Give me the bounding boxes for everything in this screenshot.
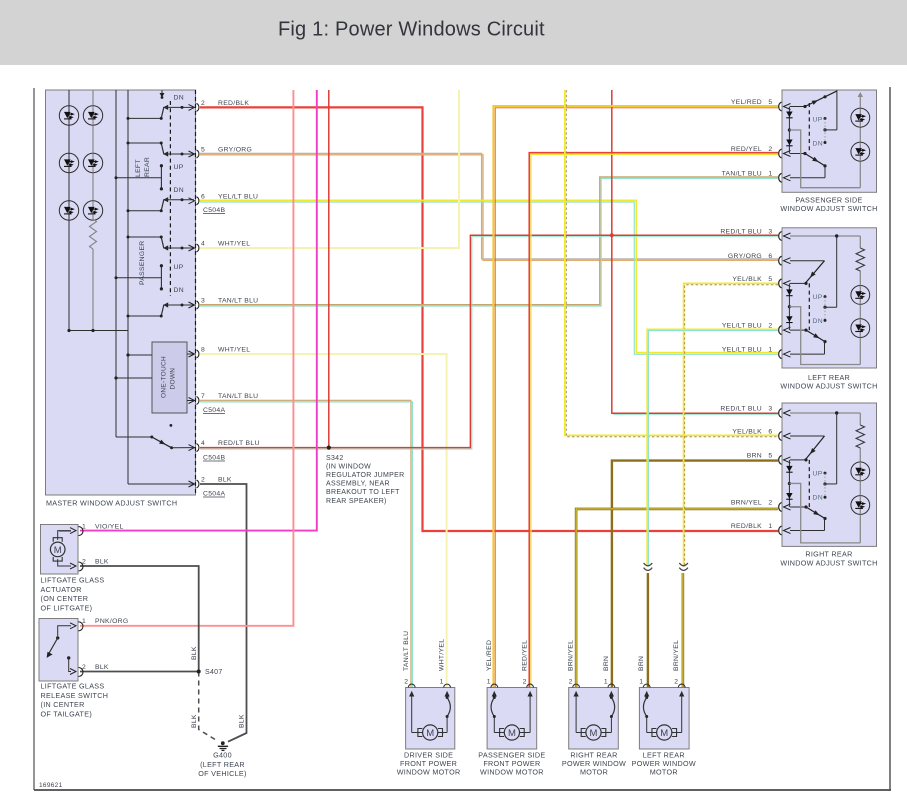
svg-text:4: 4 — [201, 440, 205, 447]
svg-text:BLK: BLK — [218, 477, 232, 484]
svg-text:2: 2 — [201, 100, 205, 107]
svg-text:OF VEHICLE): OF VEHICLE) — [198, 769, 246, 778]
svg-text:VIO/YEL: VIO/YEL — [95, 524, 124, 531]
svg-text:C504B: C504B — [203, 455, 225, 462]
svg-text:YEL/LT BLU: YEL/LT BLU — [722, 347, 762, 354]
svg-text:DN: DN — [813, 141, 823, 148]
svg-text:5: 5 — [768, 276, 772, 283]
svg-text:G400: G400 — [213, 751, 232, 760]
svg-text:2: 2 — [674, 679, 678, 686]
svg-text:YEL/LT BLU: YEL/LT BLU — [722, 323, 762, 330]
svg-text:WHT/YEL: WHT/YEL — [218, 241, 250, 248]
svg-text:MASTER WINDOW ADJUST SWITCH: MASTER WINDOW ADJUST SWITCH — [46, 499, 177, 508]
svg-text:1: 1 — [768, 523, 772, 530]
svg-text:2: 2 — [768, 323, 772, 330]
svg-text:LEFT REAR: LEFT REAR — [808, 373, 850, 382]
svg-text:PNK/ORG: PNK/ORG — [95, 618, 128, 625]
svg-text:S342: S342 — [326, 455, 344, 462]
svg-text:RED/BLK: RED/BLK — [218, 100, 249, 107]
svg-text:C504A: C504A — [203, 407, 225, 414]
svg-text:1: 1 — [639, 679, 643, 686]
svg-text:BRN: BRN — [638, 656, 645, 671]
svg-text:5: 5 — [201, 147, 205, 154]
svg-text:RED/BLK: RED/BLK — [731, 523, 762, 530]
svg-text:1: 1 — [82, 618, 86, 625]
svg-text:C504B: C504B — [203, 207, 225, 214]
svg-text:UP: UP — [813, 294, 823, 301]
svg-text:M: M — [54, 545, 62, 556]
svg-text:3: 3 — [768, 229, 772, 236]
svg-text:WHT/YEL: WHT/YEL — [439, 639, 446, 671]
svg-text:TAN/LT BLU: TAN/LT BLU — [722, 170, 762, 177]
svg-text:3: 3 — [768, 406, 772, 413]
svg-text:UP: UP — [174, 264, 184, 271]
svg-text:UP: UP — [174, 164, 184, 171]
svg-text:2: 2 — [82, 664, 86, 671]
svg-text:6: 6 — [201, 193, 205, 200]
svg-text:BLK: BLK — [191, 714, 198, 728]
svg-text:DN: DN — [813, 318, 823, 325]
svg-text:M: M — [508, 728, 516, 739]
svg-text:RELEASE SWITCH: RELEASE SWITCH — [41, 691, 109, 700]
svg-text:GRY/ORG: GRY/ORG — [728, 253, 762, 260]
svg-text:ASSEMBLY, NEAR: ASSEMBLY, NEAR — [326, 481, 390, 488]
svg-text:YEL/RED: YEL/RED — [486, 640, 493, 671]
svg-text:2: 2 — [523, 679, 527, 686]
svg-text:TAN/LT BLU: TAN/LT BLU — [403, 631, 410, 671]
svg-text:6: 6 — [768, 429, 772, 436]
svg-text:2: 2 — [768, 500, 772, 507]
svg-text:1: 1 — [768, 170, 772, 177]
svg-text:OF TAILGATE): OF TAILGATE) — [41, 709, 93, 718]
svg-text:WINDOW ADJUST SWITCH: WINDOW ADJUST SWITCH — [780, 382, 877, 391]
svg-text:PASSENGER SIDE: PASSENGER SIDE — [795, 196, 862, 205]
svg-text:DN: DN — [174, 187, 184, 194]
svg-text:RED/LT BLU: RED/LT BLU — [720, 229, 762, 236]
svg-text:YEL/LT BLU: YEL/LT BLU — [218, 193, 258, 200]
svg-text:GRY/ORG: GRY/ORG — [218, 147, 252, 154]
svg-text:M: M — [590, 728, 598, 739]
svg-text:8: 8 — [201, 347, 205, 354]
svg-text:MOTOR: MOTOR — [650, 768, 678, 777]
svg-text:WINDOW MOTOR: WINDOW MOTOR — [397, 768, 461, 777]
svg-text:BRN/YEL: BRN/YEL — [568, 640, 575, 671]
svg-text:(IN WINDOW: (IN WINDOW — [326, 463, 371, 470]
svg-text:PASSENGER: PASSENGER — [139, 241, 146, 286]
svg-text:BRN/YEL: BRN/YEL — [731, 500, 762, 507]
svg-text:2: 2 — [768, 146, 772, 153]
svg-text:6: 6 — [768, 253, 772, 260]
svg-text:RIGHT REAR: RIGHT REAR — [805, 550, 852, 559]
svg-text:WINDOW ADJUST SWITCH: WINDOW ADJUST SWITCH — [780, 204, 877, 213]
svg-text:DN: DN — [174, 287, 184, 294]
svg-text:BRN: BRN — [603, 656, 610, 671]
svg-text:REAR: REAR — [144, 157, 151, 177]
svg-text:TAN/LT BLU: TAN/LT BLU — [218, 298, 258, 305]
svg-text:BRN/YEL: BRN/YEL — [673, 640, 680, 671]
svg-text:DN: DN — [813, 495, 823, 502]
svg-text:2: 2 — [404, 679, 408, 686]
svg-text:RED/LT BLU: RED/LT BLU — [218, 440, 260, 447]
svg-text:REAR SPEAKER): REAR SPEAKER) — [326, 498, 387, 505]
svg-text:BLK: BLK — [191, 646, 198, 660]
svg-text:1: 1 — [768, 347, 772, 354]
svg-text:1: 1 — [82, 524, 86, 531]
svg-text:UP: UP — [813, 471, 823, 478]
svg-text:4: 4 — [201, 241, 205, 248]
svg-text:REGULATOR JUMPER: REGULATOR JUMPER — [326, 472, 404, 479]
svg-text:MOTOR: MOTOR — [580, 768, 608, 777]
svg-text:WINDOW ADJUST SWITCH: WINDOW ADJUST SWITCH — [780, 558, 877, 567]
svg-text:DN: DN — [174, 95, 184, 102]
svg-text:5: 5 — [768, 99, 772, 106]
svg-text:1: 1 — [440, 679, 444, 686]
svg-text:1: 1 — [604, 679, 608, 686]
svg-text:M: M — [660, 728, 668, 739]
svg-text:BLK: BLK — [95, 664, 109, 671]
svg-text:1: 1 — [487, 679, 491, 686]
svg-text:WHT/YEL: WHT/YEL — [218, 347, 250, 354]
svg-text:Fig 1: Power Windows Circuit: Fig 1: Power Windows Circuit — [278, 19, 545, 41]
svg-text:BREAKOUT TO LEFT: BREAKOUT TO LEFT — [326, 489, 400, 496]
svg-text:2: 2 — [569, 679, 573, 686]
svg-text:BRN: BRN — [747, 452, 762, 459]
svg-text:LEFT: LEFT — [135, 159, 142, 177]
svg-text:2: 2 — [201, 477, 205, 484]
svg-text:S407: S407 — [205, 669, 223, 676]
svg-text:LIFTGATE GLASS: LIFTGATE GLASS — [41, 576, 105, 585]
svg-text:M: M — [426, 728, 434, 739]
svg-text:UP: UP — [813, 117, 823, 124]
svg-text:DOWN: DOWN — [170, 368, 177, 390]
svg-text:TAN/LT BLU: TAN/LT BLU — [218, 393, 258, 400]
svg-text:LIFTGATE GLASS: LIFTGATE GLASS — [41, 682, 105, 691]
svg-text:(IN CENTER: (IN CENTER — [41, 700, 85, 709]
svg-text:OF LIFTGATE): OF LIFTGATE) — [41, 603, 93, 612]
svg-text:(LEFT REAR: (LEFT REAR — [200, 760, 245, 769]
svg-text:YEL/RED: YEL/RED — [731, 99, 762, 106]
svg-text:ACTUATOR: ACTUATOR — [41, 585, 82, 594]
svg-text:(ON CENTER: (ON CENTER — [41, 594, 89, 603]
svg-text:7: 7 — [201, 393, 205, 400]
svg-text:2: 2 — [82, 559, 86, 566]
svg-text:C504A: C504A — [203, 491, 225, 498]
svg-text:BLK: BLK — [239, 714, 246, 728]
svg-text:YEL/BLK: YEL/BLK — [732, 276, 762, 283]
svg-text:YEL/BLK: YEL/BLK — [732, 429, 762, 436]
svg-text:5: 5 — [768, 452, 772, 459]
svg-text:RED/LT BLU: RED/LT BLU — [720, 406, 762, 413]
svg-text:169621: 169621 — [39, 782, 63, 789]
svg-text:RED/YEL: RED/YEL — [522, 640, 529, 671]
svg-text:ONE-TOUCH: ONE-TOUCH — [161, 356, 168, 398]
svg-text:RED/YEL: RED/YEL — [731, 146, 762, 153]
svg-text:3: 3 — [201, 298, 205, 305]
svg-text:BLK: BLK — [95, 559, 109, 566]
svg-text:WINDOW MOTOR: WINDOW MOTOR — [480, 768, 544, 777]
